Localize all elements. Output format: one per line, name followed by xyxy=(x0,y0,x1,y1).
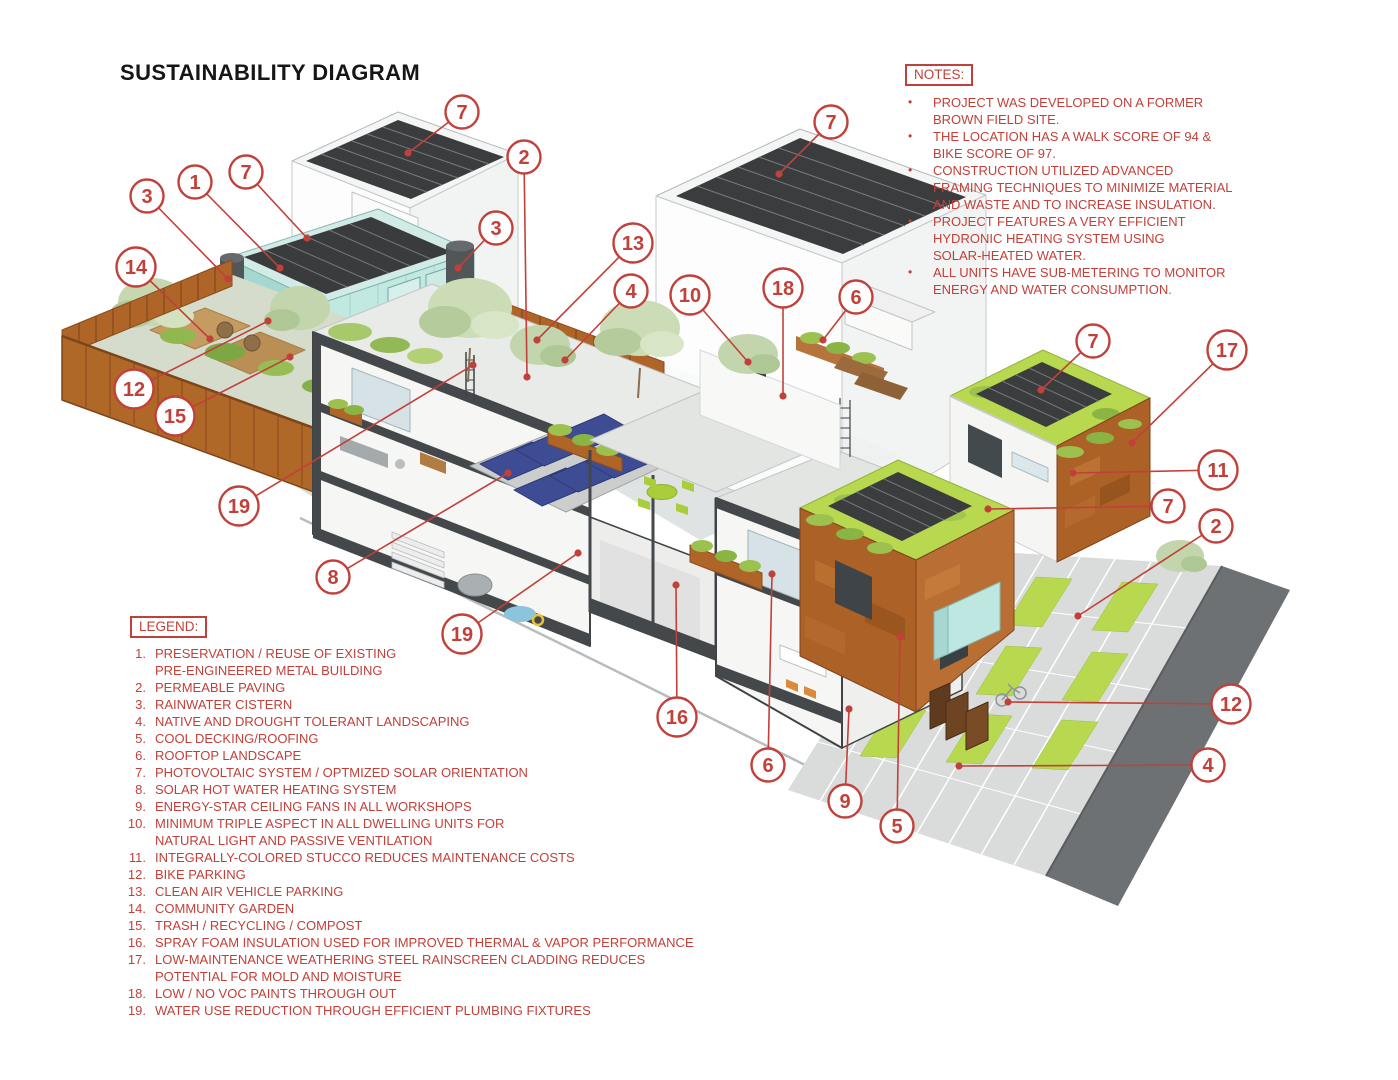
legend-item: 16.SPRAY FOAM INSULATION USED FOR IMPROV… xyxy=(118,934,778,951)
callout-number: 13 xyxy=(622,233,644,255)
leader-dot xyxy=(1004,698,1011,705)
legend-item-text: SOLAR HOT WATER HEATING SYSTEM xyxy=(155,781,397,798)
note-item: •PROJECT WAS DEVELOPED ON A FORMER BROWN… xyxy=(900,94,1268,128)
legend-item-text: NATIVE AND DROUGHT TOLERANT LANDSCAPING xyxy=(155,713,469,730)
callout-number: 19 xyxy=(228,496,250,518)
legend-item: 14.COMMUNITY GARDEN xyxy=(118,900,778,917)
legend-item-number: 3. xyxy=(118,696,146,713)
callout-number: 3 xyxy=(141,186,152,208)
leader-dot xyxy=(574,549,581,556)
leader-dot xyxy=(504,469,511,476)
notes-label: NOTES: xyxy=(905,64,973,86)
callout-number: 17 xyxy=(1216,340,1238,362)
legend-item-text: WATER USE REDUCTION THROUGH EFFICIENT PL… xyxy=(155,1002,591,1019)
note-text: PROJECT WAS DEVELOPED ON A FORMER BROWN … xyxy=(933,94,1203,128)
leader-dot xyxy=(1069,469,1076,476)
legend-item-text: LOW-MAINTENANCE WEATHERING STEEL RAINSCR… xyxy=(155,951,645,985)
legend-item-text: PRESERVATION / REUSE OF EXISTING PRE-ENG… xyxy=(155,645,396,679)
note-item: •PROJECT FEATURES A VERY EFFICIENT HYDRO… xyxy=(900,213,1268,264)
legend-item: 17.LOW-MAINTENANCE WEATHERING STEEL RAIN… xyxy=(118,951,778,985)
note-text: PROJECT FEATURES A VERY EFFICIENT HYDRON… xyxy=(933,213,1186,264)
callout-number: 5 xyxy=(891,816,902,838)
legend-item: 9.ENERGY-STAR CEILING FANS IN ALL WORKSH… xyxy=(118,798,778,815)
legend-item: 10.MINIMUM TRIPLE ASPECT IN ALL DWELLING… xyxy=(118,815,778,849)
legend-item-number: 2. xyxy=(118,679,146,696)
legend-item-number: 16. xyxy=(118,934,146,951)
legend-item-text: INTEGRALLY-COLORED STUCCO REDUCES MAINTE… xyxy=(155,849,575,866)
legend-item-number: 7. xyxy=(118,764,146,781)
leader-dot xyxy=(303,234,310,241)
legend-item: 8.SOLAR HOT WATER HEATING SYSTEM xyxy=(118,781,778,798)
leader-dot xyxy=(672,581,679,588)
callout-number: 15 xyxy=(164,406,186,428)
legend-label: LEGEND: xyxy=(130,616,207,638)
legend-item-number: 17. xyxy=(118,951,146,985)
notes-panel: NOTES: •PROJECT WAS DEVELOPED ON A FORME… xyxy=(900,64,1268,298)
legend-item-text: CLEAN AIR VEHICLE PARKING xyxy=(155,883,343,900)
leader-dot xyxy=(404,149,411,156)
bullet-icon: • xyxy=(900,162,933,213)
callout-number: 11 xyxy=(1207,460,1228,482)
leader-dot xyxy=(768,570,775,577)
legend-item: 6.ROOFTOP LANDSCAPE xyxy=(118,747,778,764)
bullet-icon: • xyxy=(900,128,933,162)
legend-item: 5.COOL DECKING/ROOFING xyxy=(118,730,778,747)
legend-list: 1.PRESERVATION / REUSE OF EXISTING PRE-E… xyxy=(118,645,778,1019)
callout-number: 12 xyxy=(123,379,145,401)
callout-number: 9 xyxy=(839,791,850,813)
callout-number: 12 xyxy=(1220,694,1242,716)
callout-number: 10 xyxy=(679,285,701,307)
legend-item-number: 18. xyxy=(118,985,146,1002)
leader-dot xyxy=(845,705,852,712)
note-item: •ALL UNITS HAVE SUB-METERING TO MONITOR … xyxy=(900,264,1268,298)
leader-dot xyxy=(533,336,540,343)
page-title: SUSTAINABILITY DIAGRAM xyxy=(120,60,420,86)
legend-item-number: 19. xyxy=(118,1002,146,1019)
leader-dot xyxy=(1037,386,1044,393)
callout-number: 18 xyxy=(772,278,794,300)
note-text: THE LOCATION HAS A WALK SCORE OF 94 & BI… xyxy=(933,128,1211,162)
note-item: •THE LOCATION HAS A WALK SCORE OF 94 & B… xyxy=(900,128,1268,162)
leader-dot xyxy=(896,633,903,640)
notes-list: •PROJECT WAS DEVELOPED ON A FORMER BROWN… xyxy=(900,94,1268,298)
legend-item-number: 15. xyxy=(118,917,146,934)
bullet-icon: • xyxy=(900,213,933,264)
leader-dot xyxy=(744,358,751,365)
legend-item-number: 1. xyxy=(118,645,146,679)
callout-number: 7 xyxy=(240,162,251,184)
callout-number: 3 xyxy=(490,218,501,240)
note-text: CONSTRUCTION UTILIZED ADVANCED FRAMING T… xyxy=(933,162,1233,213)
legend-item-number: 14. xyxy=(118,900,146,917)
callout-number: 6 xyxy=(850,287,861,309)
callout-number: 4 xyxy=(625,281,637,303)
legend-item: 7.PHOTOVOLTAIC SYSTEM / OPTMIZED SOLAR O… xyxy=(118,764,778,781)
leader-dot xyxy=(819,336,826,343)
leader-dot xyxy=(286,353,293,360)
leader-dot xyxy=(264,317,271,324)
callout-number: 7 xyxy=(1087,331,1098,353)
legend-item-number: 8. xyxy=(118,781,146,798)
legend-item-number: 6. xyxy=(118,747,146,764)
note-text: ALL UNITS HAVE SUB-METERING TO MONITOR E… xyxy=(933,264,1226,298)
leader-dot xyxy=(561,356,568,363)
bullet-icon: • xyxy=(900,264,933,298)
tank xyxy=(458,574,492,596)
legend-item-text: BIKE PARKING xyxy=(155,866,246,883)
legend-item: 19.WATER USE REDUCTION THROUGH EFFICIENT… xyxy=(118,1002,778,1019)
legend-item: 11.INTEGRALLY-COLORED STUCCO REDUCES MAI… xyxy=(118,849,778,866)
note-item: •CONSTRUCTION UTILIZED ADVANCED FRAMING … xyxy=(900,162,1268,213)
legend-item: 2.PERMEABLE PAVING xyxy=(118,679,778,696)
legend-item-text: LOW / NO VOC PAINTS THROUGH OUT xyxy=(155,985,396,1002)
legend-item-text: PHOTOVOLTAIC SYSTEM / OPTMIZED SOLAR ORI… xyxy=(155,764,528,781)
callout-number: 4 xyxy=(1202,755,1214,777)
leader-dot xyxy=(984,505,991,512)
callout-number: 7 xyxy=(1162,496,1173,518)
leader-dot xyxy=(206,335,213,342)
callout-17: 17 xyxy=(1128,331,1246,447)
legend-item-text: RAINWATER CISTERN xyxy=(155,696,292,713)
callout-number: 1 xyxy=(189,172,200,194)
legend-item-text: SPRAY FOAM INSULATION USED FOR IMPROVED … xyxy=(155,934,694,951)
legend-item-text: COOL DECKING/ROOFING xyxy=(155,730,318,747)
legend-item-number: 9. xyxy=(118,798,146,815)
callout-number: 8 xyxy=(327,567,338,589)
legend-item-text: ROOFTOP LANDSCAPE xyxy=(155,747,301,764)
legend-item-number: 12. xyxy=(118,866,146,883)
leader-dot xyxy=(955,762,962,769)
legend-item-number: 4. xyxy=(118,713,146,730)
legend-item-number: 10. xyxy=(118,815,146,849)
callout-number: 2 xyxy=(1210,516,1221,538)
leader-dot xyxy=(779,392,786,399)
callout-number: 14 xyxy=(125,257,148,279)
legend-item-number: 11. xyxy=(118,849,146,866)
legend-panel: LEGEND: 1.PRESERVATION / REUSE OF EXISTI… xyxy=(118,616,778,1019)
legend-item: 18.LOW / NO VOC PAINTS THROUGH OUT xyxy=(118,985,778,1002)
legend-item-text: MINIMUM TRIPLE ASPECT IN ALL DWELLING UN… xyxy=(155,815,504,849)
leader-dot xyxy=(224,275,231,282)
legend-item: 15.TRASH / RECYCLING / COMPOST xyxy=(118,917,778,934)
legend-item: 1.PRESERVATION / REUSE OF EXISTING PRE-E… xyxy=(118,645,778,679)
legend-item-text: TRASH / RECYCLING / COMPOST xyxy=(155,917,362,934)
legend-item-text: COMMUNITY GARDEN xyxy=(155,900,294,917)
leader-dot xyxy=(523,373,530,380)
leader-dot xyxy=(1074,612,1081,619)
leader-dot xyxy=(276,264,283,271)
bullet-icon: • xyxy=(900,94,933,128)
legend-item-number: 13. xyxy=(118,883,146,900)
leader-dot xyxy=(469,361,476,368)
legend-item: 3.RAINWATER CISTERN xyxy=(118,696,778,713)
callout-number: 2 xyxy=(518,147,529,169)
legend-item: 13.CLEAN AIR VEHICLE PARKING xyxy=(118,883,778,900)
legend-item-text: ENERGY-STAR CEILING FANS IN ALL WORKSHOP… xyxy=(155,798,472,815)
legend-item-number: 5. xyxy=(118,730,146,747)
legend-item: 12.BIKE PARKING xyxy=(118,866,778,883)
callout-number: 7 xyxy=(825,112,836,134)
legend-item: 4.NATIVE AND DROUGHT TOLERANT LANDSCAPIN… xyxy=(118,713,778,730)
leader-dot xyxy=(775,170,782,177)
legend-item-text: PERMEABLE PAVING xyxy=(155,679,285,696)
callout-number: 7 xyxy=(456,102,467,124)
leader-dot xyxy=(1128,439,1135,446)
leader-dot xyxy=(454,264,461,271)
